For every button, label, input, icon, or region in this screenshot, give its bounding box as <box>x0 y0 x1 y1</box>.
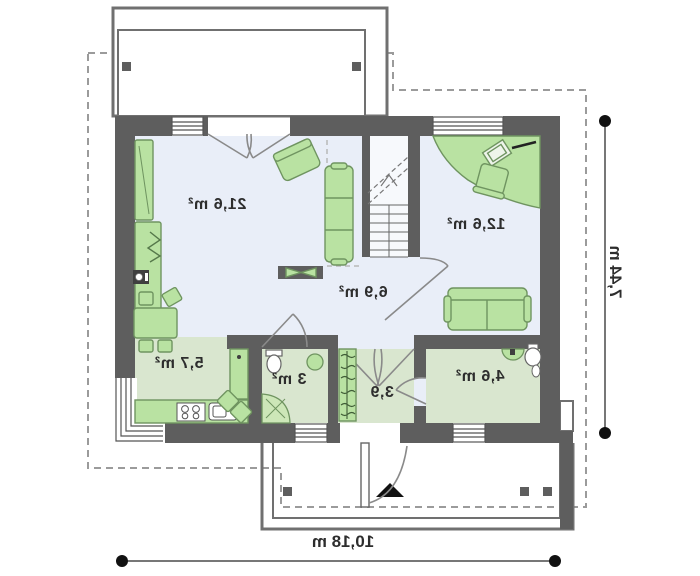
wall-bottom <box>327 423 340 443</box>
dimension-label-height: 7,44 m <box>604 212 626 332</box>
wall-bedroom-bottom <box>426 335 540 349</box>
floor-plan-page: 21,6 m² 12,6 m² 6,9 m² 5,7 m² 3 m² 3,9 4… <box>0 0 700 576</box>
room-label-bedroom: 12,6 m² <box>421 214 531 236</box>
wall-bottom <box>163 423 295 443</box>
entrance-door-icon <box>361 443 407 507</box>
chair-icon <box>139 292 153 305</box>
wall-bottom <box>400 423 453 443</box>
wall-stairs-right <box>408 136 420 257</box>
room-label-bathroom: 4,6 m² <box>425 366 535 388</box>
room-label-vestibule: 3,9 <box>327 382 437 404</box>
wall-bottom <box>485 423 540 443</box>
dimension-endpoint <box>599 427 611 439</box>
wall-right <box>540 116 560 443</box>
chair-icon <box>158 340 172 352</box>
wall-vestibule-bath <box>414 406 426 423</box>
dimension-endpoint <box>599 115 611 127</box>
porch-side-wall <box>560 401 573 431</box>
window-icon <box>172 117 203 135</box>
room-label-kitchen: 5,7 m² <box>124 353 234 375</box>
window-icon <box>295 424 327 442</box>
porch-post-icon <box>520 487 529 496</box>
wall-top <box>203 116 208 136</box>
terrace <box>113 8 387 116</box>
wall-stairs-left <box>362 136 370 257</box>
washbasin-icon <box>307 354 323 370</box>
dimension-endpoint <box>549 555 561 567</box>
porch-post-icon <box>543 487 552 496</box>
window-icon <box>433 117 503 135</box>
sofa-icon <box>325 163 353 265</box>
porch-outer-edge <box>262 443 573 529</box>
dimension-endpoint <box>116 555 128 567</box>
sideboard-icon <box>278 266 323 279</box>
stove-icon <box>177 403 205 421</box>
wall-top <box>290 116 433 136</box>
room-label-living: 21,6 m² <box>162 194 272 216</box>
tv-cabinet-icon <box>133 270 149 284</box>
room-label-hall: 6,9 m² <box>308 282 418 304</box>
terrace-inner-edge <box>118 30 365 116</box>
tap-icon <box>510 349 515 355</box>
sofa-icon <box>444 288 531 330</box>
porch-post-icon <box>283 487 292 496</box>
dimension-label-width: 10,18 m <box>283 531 403 553</box>
stairs-icon <box>368 136 408 257</box>
terrace-post-icon <box>122 62 131 71</box>
porch-side-wall-solid <box>560 431 573 529</box>
wall-bath-small-top <box>227 335 328 349</box>
window-icon <box>453 424 485 442</box>
chair-icon <box>139 340 153 352</box>
terrace-post-icon <box>352 62 361 71</box>
wall-left <box>115 116 135 378</box>
